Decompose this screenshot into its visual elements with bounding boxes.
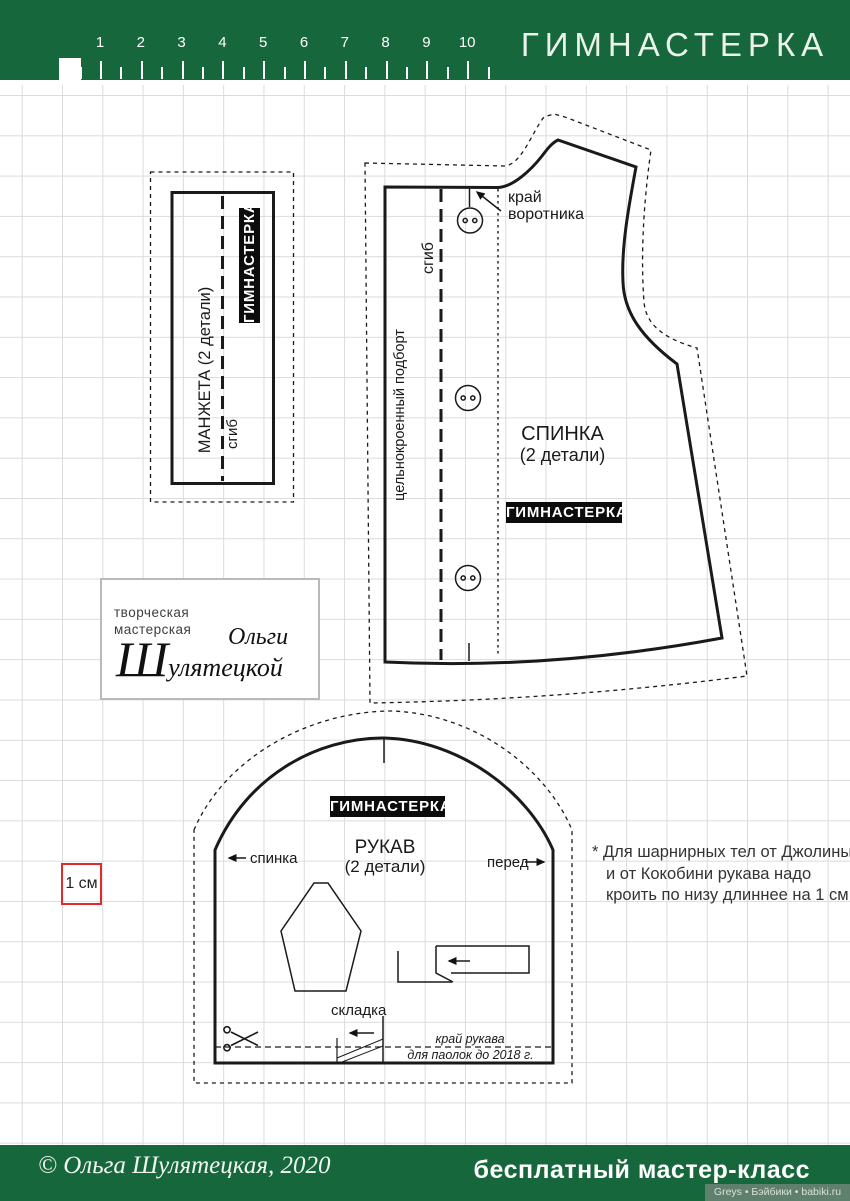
ruler-tick	[324, 67, 326, 79]
logo-subtitle-1: творческая	[114, 604, 191, 621]
cut-note-2: для паолок до 2018 г.	[398, 1048, 543, 1062]
logo-name-last: Шулятецкой	[116, 630, 283, 688]
ruler-number: 8	[376, 34, 396, 51]
ruler-number: 1	[90, 34, 110, 51]
back-brand-tag: ГИМНАСТЕРКА	[506, 502, 622, 523]
ruler-tick	[406, 67, 408, 79]
ruler-number: 9	[416, 34, 436, 51]
ruler-tick	[284, 67, 286, 79]
ruler-tick	[488, 67, 490, 79]
back-piece-name: СПИНКА	[480, 423, 645, 446]
ruler-tick	[80, 67, 82, 79]
sleeve-piece-qty: (2 детали)	[305, 857, 465, 877]
collar-edge-label-1: край	[508, 189, 542, 207]
ruler-number: 4	[212, 34, 232, 51]
footer-tagline: бесплатный мастер-класс	[474, 1156, 810, 1185]
ruler-tick	[100, 61, 102, 79]
ruler-tick	[120, 67, 122, 79]
sleeve-back-label: спинка	[250, 850, 298, 867]
pleat-label: складка	[331, 1002, 386, 1019]
cuff-fold-label: сгиб	[224, 406, 241, 462]
ruler-tick	[365, 67, 367, 79]
ruler-tick	[222, 61, 224, 79]
scale-reference-box: 1 см	[61, 863, 102, 905]
ruler-tick	[243, 67, 245, 79]
ruler-tick	[202, 67, 204, 79]
header-band: 12345678910 ГИМНАСТЕРКА	[0, 0, 850, 80]
back-fold-label: сгиб	[420, 229, 438, 287]
site-watermark: Greys • Бэйбики • babiki.ru	[705, 1184, 850, 1201]
pattern-sheet: 12345678910 ГИМНАСТЕРКА	[0, 0, 850, 1201]
ruler-number: 6	[294, 34, 314, 51]
sizing-note: * Для шарнирных тел от Джолины и от Коко…	[592, 842, 850, 907]
back-piece-qty: (2 детали)	[480, 445, 645, 466]
ruler-zero-block	[59, 58, 81, 80]
ruler-tick	[386, 61, 388, 79]
ruler-tick	[426, 61, 428, 79]
ruler-number: 3	[172, 34, 192, 51]
ruler-tick	[161, 67, 163, 79]
ruler-number: 5	[253, 34, 273, 51]
sleeve-brand-tag: ГИМНАСТЕРКА	[330, 796, 445, 817]
ruler-tick	[345, 61, 347, 79]
page-title: ГИМНАСТЕРКА	[520, 26, 830, 64]
ruler-tick	[467, 61, 469, 79]
ruler-number: 7	[335, 34, 355, 51]
workshop-logo: творческая мастерская Ольги Шулятецкой	[100, 578, 320, 700]
ruler-number: 10	[457, 34, 477, 51]
sleeve-front-label: перед	[487, 854, 529, 871]
collar-edge-label-2: воротника	[508, 206, 584, 224]
ruler-number: 2	[131, 34, 151, 51]
ruler-tick	[304, 61, 306, 79]
cuff-label: МАНЖЕТА (2 детали)	[196, 272, 215, 468]
sleeve-piece-name: РУКАВ	[305, 837, 465, 859]
ruler-tick	[182, 61, 184, 79]
ruler-tick	[447, 67, 449, 79]
back-facing-label: цельнокроенный подборт	[392, 328, 408, 502]
copyright-text: © Ольга Шулятецкая, 2020	[38, 1152, 330, 1180]
cuff-brand-tag: ГИМНАСТЕРКА	[239, 208, 260, 323]
ruler-tick	[263, 61, 265, 79]
ruler-tick	[141, 61, 143, 79]
cut-note-1: край рукава	[415, 1032, 525, 1046]
